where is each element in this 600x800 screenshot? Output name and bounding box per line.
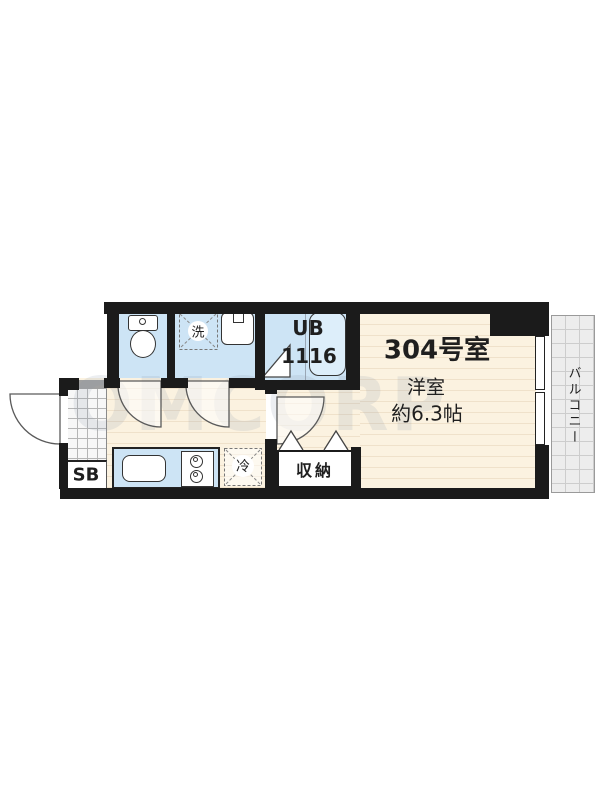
wall-nook-upper bbox=[265, 382, 277, 394]
shoebox-label: SB bbox=[73, 465, 100, 486]
wall-entrance-left-bottom bbox=[59, 443, 68, 489]
closet-label: 収納 bbox=[296, 457, 334, 481]
bath-label: UB bbox=[292, 316, 323, 340]
wall-hall-top-b bbox=[161, 378, 188, 388]
balcony-window-upper bbox=[535, 336, 545, 390]
wall-entrance-lintel bbox=[59, 378, 79, 390]
wall-top-right-corner bbox=[490, 302, 549, 336]
wall-nook-lower bbox=[265, 439, 277, 490]
wash-basin-faucet bbox=[233, 313, 244, 323]
washer-label: 洗 bbox=[191, 322, 204, 341]
wall-bath-right bbox=[346, 302, 360, 390]
wall-hall-top-a bbox=[104, 378, 120, 388]
wall-closet-right bbox=[351, 447, 361, 490]
entrance-door-swing bbox=[10, 394, 60, 444]
wall-bottom bbox=[60, 488, 549, 499]
bath-size-label: 1116 bbox=[281, 344, 337, 368]
stove-burner-dot-bottom bbox=[193, 472, 198, 477]
room-type-label: 洋室 bbox=[407, 373, 445, 400]
toilet-flush-button bbox=[139, 318, 146, 325]
floor-plan: OMCORP bbox=[0, 0, 600, 800]
balcony-window-lower bbox=[535, 392, 545, 445]
fridge-label: 冷 bbox=[236, 456, 250, 476]
wall-washroom-bath bbox=[255, 302, 265, 390]
stove-burner-dot-top bbox=[193, 457, 198, 462]
wall-toilet-left bbox=[107, 302, 119, 388]
balcony-label: バルコニー bbox=[564, 366, 583, 446]
wall-hall-top-c bbox=[229, 378, 255, 388]
wall-right-lower bbox=[535, 445, 549, 489]
room-size-label: 約6.3帖 bbox=[391, 398, 463, 427]
toilet-bowl bbox=[130, 330, 156, 358]
unit-number-label: 304号室 bbox=[384, 330, 490, 367]
kitchen-sink bbox=[122, 455, 166, 482]
wall-toilet-washroom bbox=[167, 302, 175, 384]
